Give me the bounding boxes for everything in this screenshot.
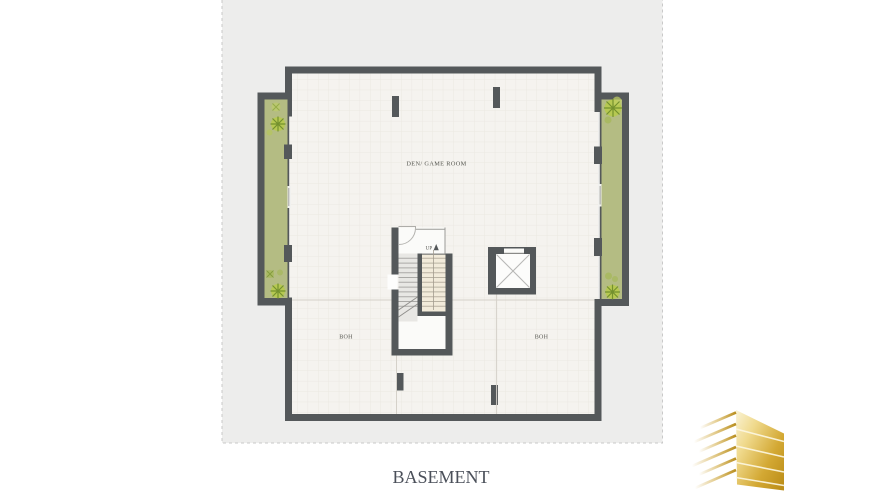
svg-text:BASEMENT: BASEMENT <box>392 467 489 487</box>
svg-text:UP: UP <box>426 246 433 251</box>
svg-text:BOH: BOH <box>535 335 549 341</box>
svg-text:BOH: BOH <box>339 335 353 341</box>
svg-text:DEN/ GAME ROOM: DEN/ GAME ROOM <box>406 161 466 168</box>
